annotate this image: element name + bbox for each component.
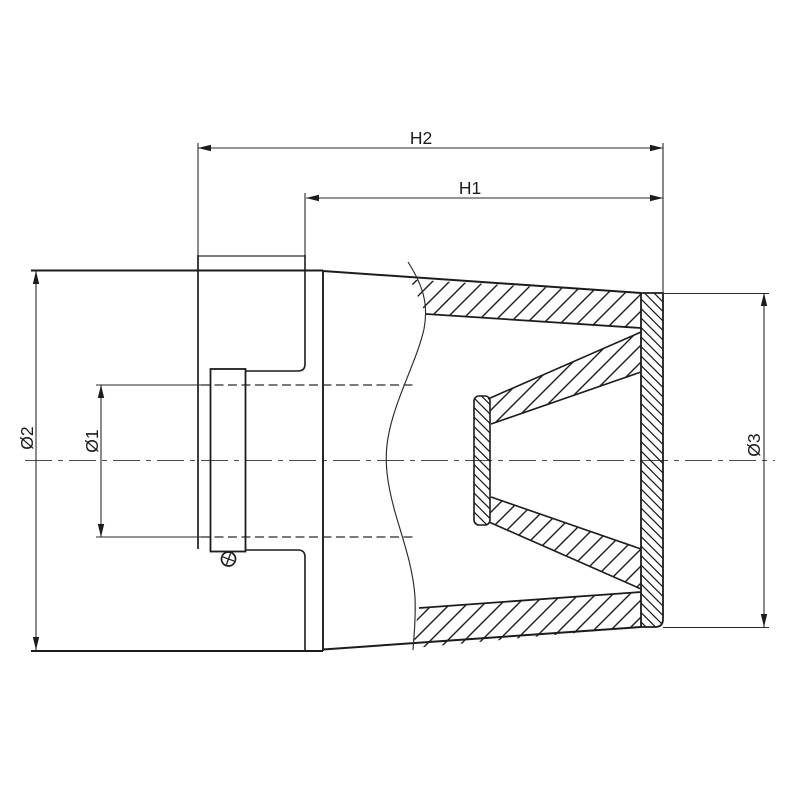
inner-cone-end-section (474, 396, 490, 525)
inner-cone-section-bottom (489, 497, 641, 589)
dimension-h1: H1 (305, 178, 663, 255)
dim-label-d1: Ø1 (82, 429, 102, 452)
dim-label-h1: H1 (459, 178, 481, 198)
arrow-down-icon (98, 524, 104, 537)
dim-label-h2: H2 (410, 128, 432, 148)
arrow-left-icon (306, 195, 319, 201)
drawing-canvas: H2 H1 Ø2 Ø1 Ø3 (0, 0, 800, 800)
arrow-up-icon (761, 293, 767, 306)
arrow-down-icon (33, 637, 39, 650)
arrow-down-icon (761, 614, 767, 627)
arrow-right-icon (650, 145, 663, 151)
clamp-screw-icon (220, 550, 238, 568)
end-cap-section (641, 293, 663, 627)
air-filter-technical-drawing: H2 H1 Ø2 Ø1 Ø3 (0, 0, 800, 800)
dim-label-d3: Ø3 (744, 433, 764, 456)
arrow-left-icon (198, 145, 211, 151)
break-line (386, 262, 425, 650)
arrow-up-icon (33, 271, 39, 284)
filter-media-section-bottom (414, 592, 641, 648)
inner-cone-section-top (488, 332, 641, 424)
filter-media-section-top (410, 280, 641, 329)
arrow-up-icon (98, 385, 104, 398)
inlet-flange (31, 255, 323, 651)
arrow-right-icon (650, 195, 663, 201)
dimension-h2: H2 (198, 128, 663, 292)
dim-label-d2: Ø2 (17, 426, 37, 449)
